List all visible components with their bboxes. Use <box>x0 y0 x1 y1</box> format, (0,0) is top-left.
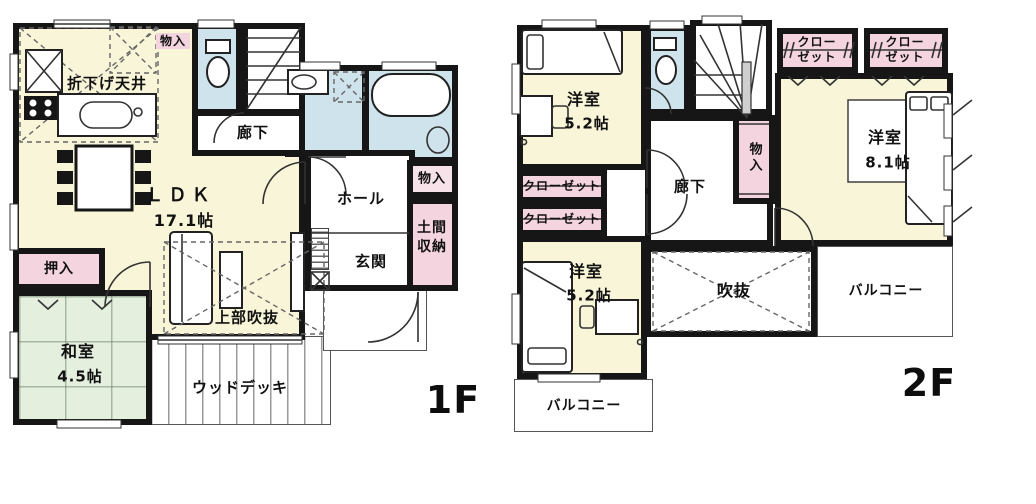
refrigerator-icon <box>26 50 62 92</box>
label-monoire-top: 物入 <box>156 33 190 49</box>
label-yoshitsu-e-name: 洋室 <box>868 130 902 146</box>
label-genkan: 玄関 <box>355 255 387 270</box>
label-washitsu-size: 4.5帖 <box>57 370 103 385</box>
tatami-fold-marks <box>38 300 112 309</box>
label-oshiire: 押入 <box>44 262 74 276</box>
tv-board-icon <box>291 233 304 311</box>
desk-icon-sw <box>580 300 643 345</box>
label-closet-w1: クローゼット <box>523 180 601 192</box>
bathtub-icon <box>372 74 450 153</box>
label-wood-deck: ウッドデッキ <box>192 381 288 396</box>
label-joubu-fukinuke: 上部吹抜 <box>215 311 279 326</box>
door-arcs-2f <box>645 88 813 246</box>
label-ldk-name: ＬＤＫ <box>146 187 215 205</box>
stairs-icon-2f <box>694 22 762 118</box>
kitchen-counter-icon <box>24 94 156 136</box>
bed-icon-nw <box>522 30 622 74</box>
stairs-icon-1f <box>246 27 301 109</box>
label-doma-line1: 土間 <box>417 221 447 235</box>
toilet-icon-2f <box>654 38 676 84</box>
label-hall: ホール <box>337 192 385 207</box>
label-closet-ne2-line1: クロー <box>885 36 924 48</box>
label-monoire-2f: 物入 <box>748 142 761 174</box>
label-closet-ne1-line2: ゼット <box>797 51 836 63</box>
floor-tag-2f: 2F <box>902 361 956 405</box>
label-rouka-2f: 廊下 <box>674 180 706 195</box>
label-closet-w2: クローゼット <box>523 213 601 225</box>
label-doma-line2: 収納 <box>417 240 447 254</box>
label-ldk-size: 17.1帖 <box>154 213 214 229</box>
label-closet-ne2-line2: ゼット <box>885 51 924 63</box>
desk-icon-nw <box>520 96 568 145</box>
washstand-icon <box>288 70 364 102</box>
label-fukinuke: 吹抜 <box>717 283 751 299</box>
label-closet-ne1-line1: クロー <box>797 36 836 48</box>
dining-set-icon <box>57 146 151 210</box>
floorplan-image: 物入 折下げ天井 廊下 ＬＤＫ 17.1帖 物入 ホール 土間 収納 玄関 押入… <box>0 0 1036 504</box>
label-washitsu-name: 和室 <box>61 344 95 360</box>
label-yoshitsu-nw-size: 5.2帖 <box>564 117 610 132</box>
label-balcony-south: バルコニー <box>547 399 622 413</box>
label-rouka-1f: 廊下 <box>237 126 269 141</box>
label-balcony-east: バルコニー <box>849 284 924 298</box>
label-oridage-tenjo: 折下げ天井 <box>67 77 147 92</box>
bed-icon-sw <box>522 262 572 372</box>
label-monoire-side: 物入 <box>418 173 446 186</box>
label-yoshitsu-sw-name: 洋室 <box>569 264 603 280</box>
label-yoshitsu-e-size: 8.1帖 <box>865 156 911 171</box>
floor-tag-1f: 1F <box>426 378 480 422</box>
linework-overlay <box>0 0 1036 504</box>
label-yoshitsu-sw-size: 5.2帖 <box>566 289 612 304</box>
toilet-icon-1f <box>206 40 230 87</box>
label-yoshitsu-nw-name: 洋室 <box>567 92 601 108</box>
